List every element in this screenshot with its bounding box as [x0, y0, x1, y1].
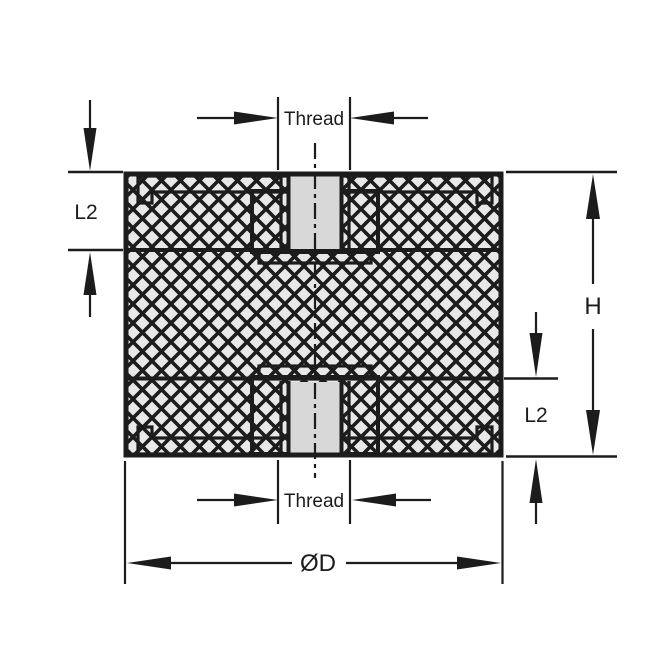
arrowhead-down-icon: [530, 333, 543, 377]
diameter-label: ØD: [300, 550, 336, 577]
rubber-mount-cross-section-drawing: Thread L2 H L2 Thread: [0, 0, 670, 670]
arrowhead-right-icon: [234, 494, 278, 507]
arrowhead-down-icon: [84, 128, 97, 171]
arrowhead-up-icon: [84, 252, 97, 295]
dimension-height: H: [506, 172, 617, 457]
dimension-l2-bottom-right: L2: [504, 312, 558, 524]
arrowhead-down-icon: [586, 410, 600, 455]
arrowhead-up-icon: [586, 174, 600, 219]
thread-top-label: Thread: [284, 109, 344, 130]
arrowhead-left-icon: [350, 112, 394, 125]
arrowhead-right-icon: [457, 557, 501, 570]
l2-top-left-label: L2: [74, 201, 97, 224]
arrowhead-left-icon: [127, 557, 171, 570]
arrowhead-up-icon: [530, 459, 543, 503]
arrowhead-right-icon: [234, 112, 278, 125]
dimension-thread-top: Thread: [197, 97, 428, 170]
technical-drawing-canvas: Thread L2 H L2 Thread: [0, 0, 670, 670]
height-label: H: [584, 293, 601, 320]
dimension-diameter: ØD: [125, 461, 503, 584]
thread-bottom-label: Thread: [284, 491, 344, 512]
l2-bottom-right-label: L2: [524, 404, 547, 427]
dimension-thread-bottom: Thread: [197, 460, 431, 524]
dimension-l2-top-left: L2: [68, 100, 123, 317]
part-cross-section: [124, 143, 503, 478]
arrowhead-left-icon: [352, 494, 396, 507]
